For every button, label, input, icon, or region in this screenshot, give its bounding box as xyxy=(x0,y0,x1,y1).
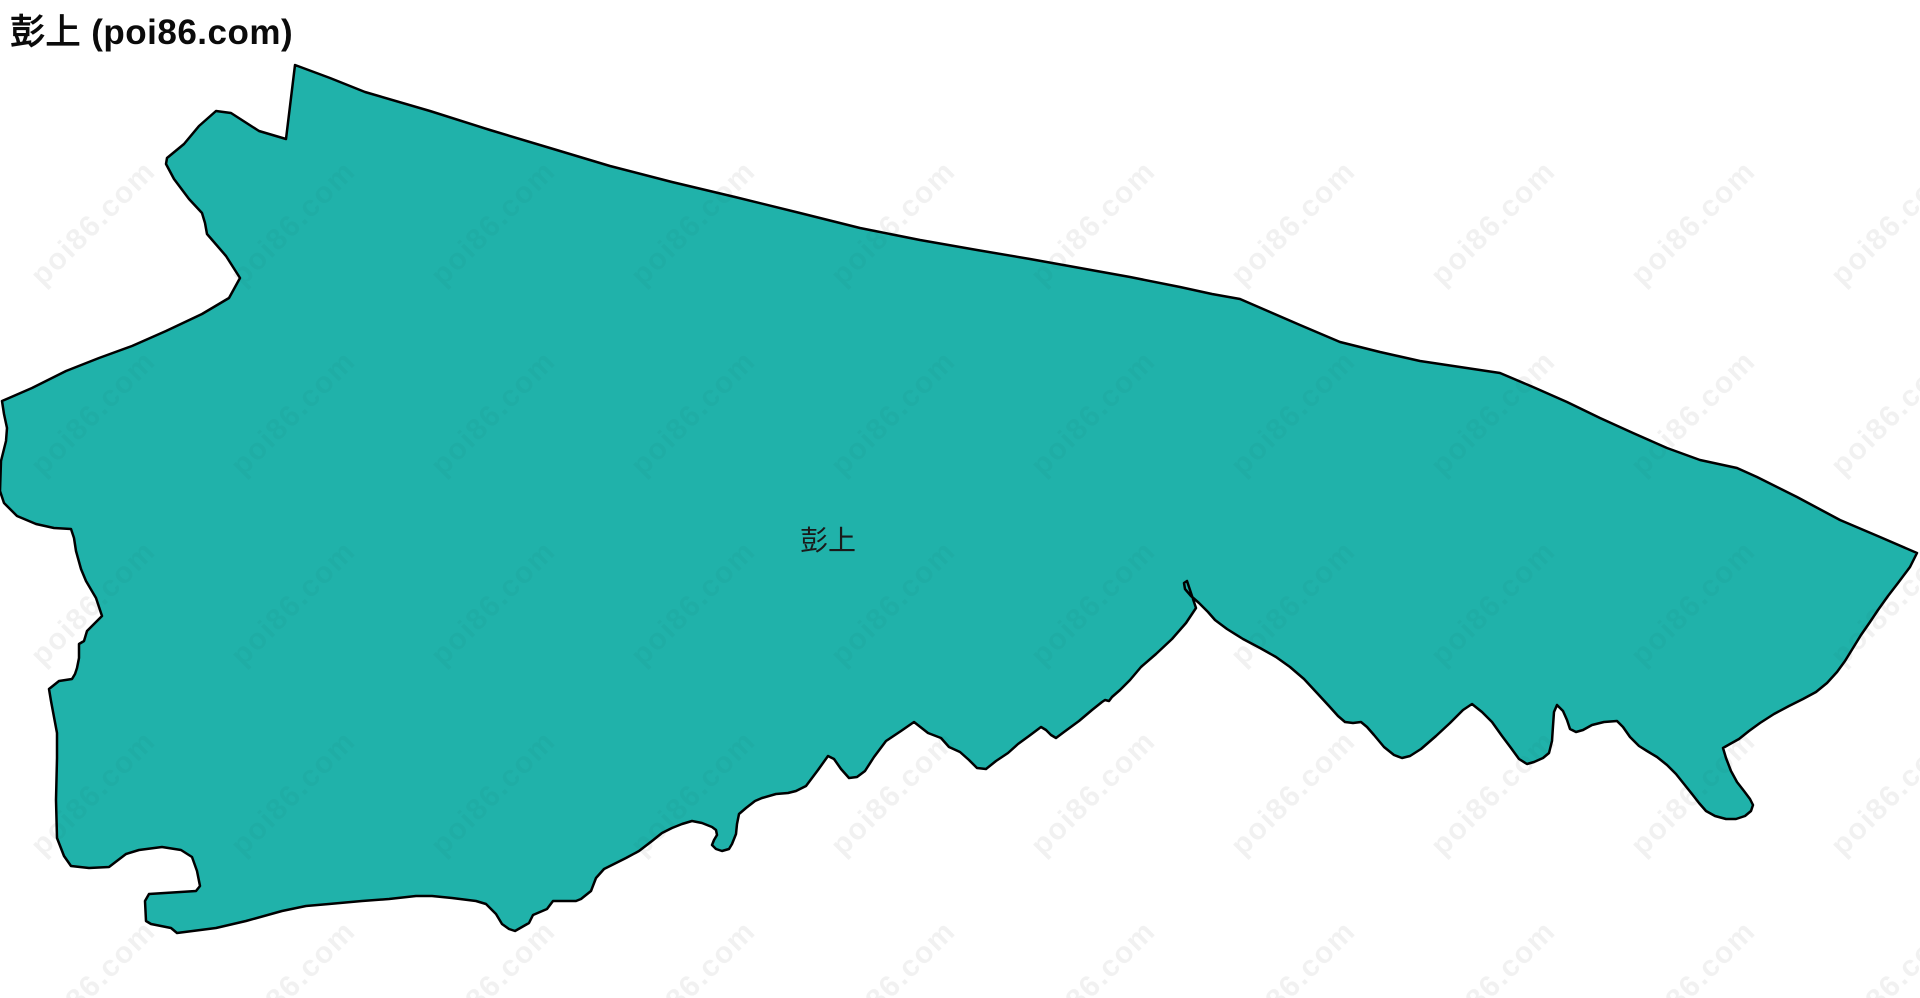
watermark-text: poi86.com xyxy=(24,914,162,998)
page-title: 彭上 (poi86.com) xyxy=(10,4,293,55)
region-map: poi86.compoi86.compoi86.compoi86.compoi8… xyxy=(0,0,1920,998)
watermark-text: poi86.com xyxy=(1824,344,1920,482)
watermark-text: poi86.com xyxy=(1624,154,1762,292)
watermark-text: poi86.com xyxy=(1824,724,1920,862)
watermark-text: poi86.com xyxy=(1824,914,1920,998)
watermark-text: poi86.com xyxy=(1424,724,1562,862)
watermark-text: poi86.com xyxy=(824,914,962,998)
watermark-text: poi86.com xyxy=(1424,914,1562,998)
watermark-text: poi86.com xyxy=(1424,154,1562,292)
watermark-text: poi86.com xyxy=(24,154,162,292)
watermark-text: poi86.com xyxy=(224,914,362,998)
watermark-text: poi86.com xyxy=(1024,914,1162,998)
watermark-text: poi86.com xyxy=(1824,154,1920,292)
map-page: 彭上 (poi86.com) poi86.compoi86.compoi86.c… xyxy=(0,0,1920,998)
watermark-text: poi86.com xyxy=(624,914,762,998)
watermark-text: poi86.com xyxy=(1224,914,1362,998)
watermark-text: poi86.com xyxy=(1224,154,1362,292)
watermark-text: poi86.com xyxy=(1024,724,1162,862)
watermark-text: poi86.com xyxy=(424,914,562,998)
watermark-text: poi86.com xyxy=(1624,914,1762,998)
watermark-text: poi86.com xyxy=(1224,724,1362,862)
region-label: 彭上 xyxy=(800,525,856,556)
